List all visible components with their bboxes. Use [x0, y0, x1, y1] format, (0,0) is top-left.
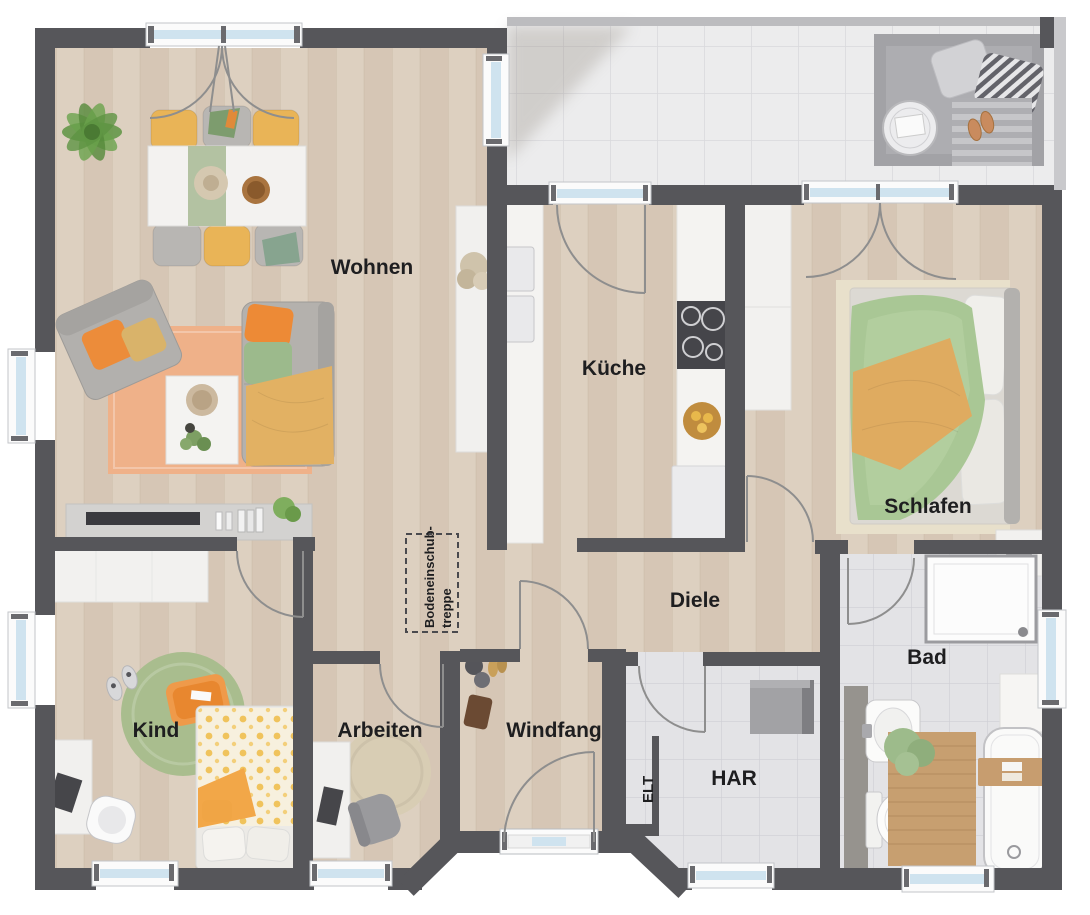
fruit-bowl — [683, 402, 721, 440]
window-wohnen-top — [146, 23, 302, 46]
books — [238, 510, 245, 532]
dining-chair — [153, 224, 201, 266]
floorplan-svg: Wohnen Küche Schlafen Diele Kind Arbeite… — [0, 0, 1090, 915]
table-flowers-core — [203, 175, 219, 191]
window-bad-right — [1038, 610, 1066, 708]
kind-wardrobe — [40, 548, 208, 602]
front-door — [500, 829, 598, 854]
terrace-edge-top — [507, 17, 1040, 26]
terrace-edge-right — [1054, 17, 1066, 190]
shower-fixture — [1018, 627, 1028, 637]
bath-halfwall — [844, 686, 868, 878]
room-label-kind: Kind — [133, 719, 180, 742]
sofa — [242, 302, 334, 466]
har-furniture — [750, 680, 814, 734]
attic-hatch-label-line1: Bodeneinschub- — [422, 526, 437, 628]
room-label-schlafen: Schlafen — [884, 495, 972, 518]
window-wohnen-terrace — [483, 54, 509, 146]
terrace-table-book — [895, 114, 926, 138]
bed-headboard — [1004, 288, 1020, 524]
room-label-wohnen: Wohnen — [331, 256, 413, 279]
attic-hatch-label-line2: treppe — [439, 588, 454, 628]
window-har-bottom — [688, 863, 774, 888]
kind-bed — [196, 706, 298, 870]
sofa-pillow-orange — [244, 303, 295, 347]
side-cabinet — [456, 206, 492, 452]
tv — [86, 512, 200, 525]
dining-chair — [151, 110, 197, 150]
bath-sink-tap — [862, 724, 872, 738]
table-bowl-inner — [247, 181, 265, 199]
room-label-kueche: Küche — [582, 357, 646, 380]
window-kind-left — [8, 612, 35, 708]
window-kind-bottom — [92, 861, 178, 886]
window-schlafen-terrace-door — [802, 181, 958, 203]
window-kueche-terrace-door — [549, 182, 651, 204]
window-bad-bottom — [902, 866, 994, 892]
room-label-elt: ELT — [640, 776, 657, 803]
room-label-arbeiten: Arbeiten — [337, 719, 422, 742]
room-label-bad: Bad — [907, 646, 947, 669]
har-appliance — [750, 680, 810, 734]
terrace-furniture — [874, 34, 1045, 166]
window-wohnen-left — [8, 349, 35, 443]
room-label-diele: Diele — [670, 589, 720, 612]
room-label-windfang: Windfang — [506, 719, 601, 742]
kitchen-appliance — [672, 466, 726, 540]
bathtub — [984, 728, 1046, 876]
coffee-table — [166, 376, 238, 464]
room-label-har: HAR — [711, 767, 757, 790]
floorplan-canvas: Wohnen Küche Schlafen Diele Kind Arbeite… — [0, 0, 1090, 915]
window-arbeiten-bottom — [310, 861, 392, 886]
dining-chair — [204, 226, 250, 266]
